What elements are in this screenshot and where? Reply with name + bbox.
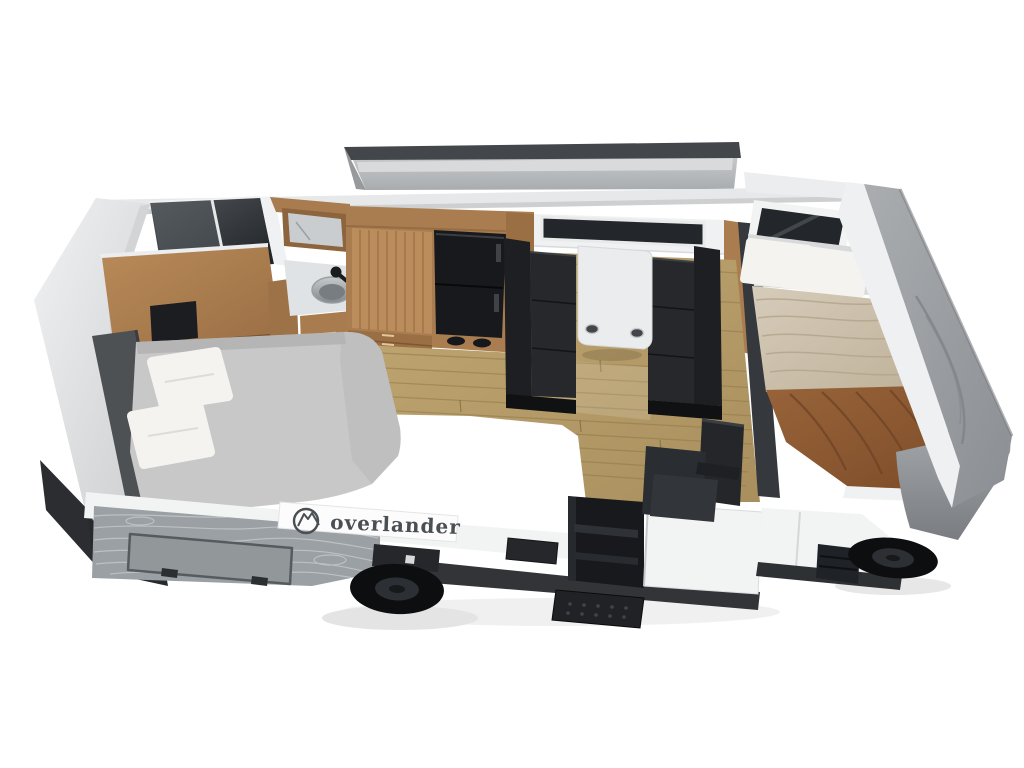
cup-holder-left [586, 325, 599, 334]
brand-logo-text: overlander [330, 510, 461, 539]
cup-holder-right [631, 329, 644, 338]
cabover-pillow-1 [744, 242, 808, 286]
galley-vent-right [473, 339, 491, 348]
rv-cutaway-render: overlander [0, 0, 1024, 768]
louvered-door [352, 228, 432, 334]
cab-seat-cushion [650, 474, 718, 522]
rear-pillow-2 [132, 404, 210, 464]
rear-pillow-1 [152, 352, 228, 406]
service-hatch-latch [405, 555, 415, 564]
fridge-handle-upper [496, 244, 501, 262]
galley-vent-left [447, 337, 465, 346]
right-bench-backrest [694, 246, 722, 406]
side-vent [506, 538, 558, 564]
left-bench-seat [530, 252, 576, 398]
right-bench-seat [648, 258, 694, 404]
entry-step-well [568, 496, 644, 588]
fridge-handle-lower [494, 294, 499, 312]
rear-bed [92, 330, 401, 520]
partition-tv-panel [150, 301, 198, 343]
left-bench-backrest [504, 238, 532, 400]
rv-floorplan-svg: overlander [0, 0, 1024, 768]
roof-dark-edge [344, 142, 741, 160]
roof-slideout [344, 142, 741, 190]
table-shadow [582, 349, 642, 361]
vanity-sink-bowl [319, 284, 345, 300]
step-well-edge [568, 496, 576, 581]
